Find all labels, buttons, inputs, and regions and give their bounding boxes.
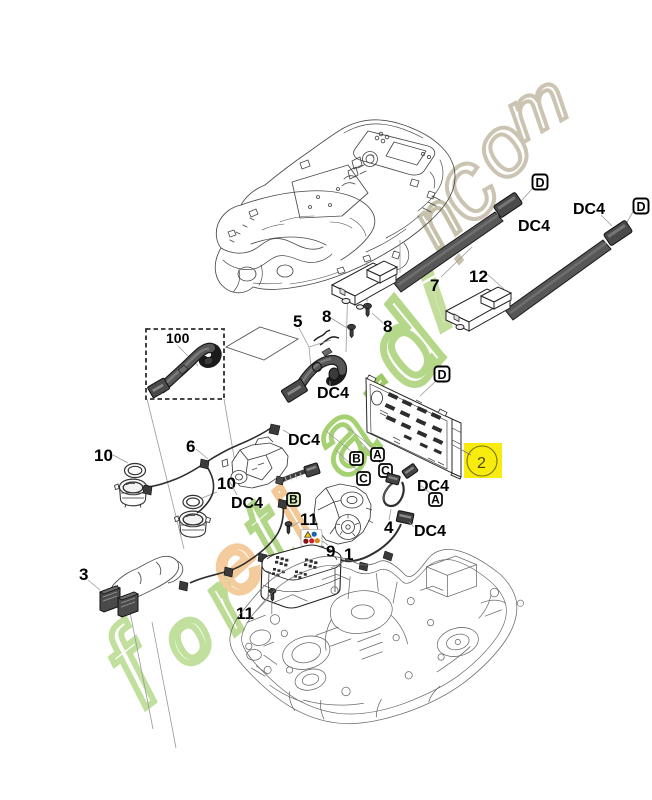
svg-text:D: D xyxy=(437,368,446,382)
svg-text:11: 11 xyxy=(236,604,254,623)
svg-text:B: B xyxy=(289,493,298,507)
svg-text:D: D xyxy=(636,200,645,214)
svg-text:DC4: DC4 xyxy=(288,432,320,449)
svg-text:3: 3 xyxy=(79,565,88,584)
svg-text:10: 10 xyxy=(217,474,236,493)
svg-text:4: 4 xyxy=(384,518,394,537)
svg-text:DC4: DC4 xyxy=(231,495,263,512)
svg-text:100: 100 xyxy=(166,330,190,346)
svg-text:8: 8 xyxy=(383,317,392,336)
svg-text:A: A xyxy=(431,493,440,507)
svg-text:DC4: DC4 xyxy=(317,385,349,402)
svg-text:2: 2 xyxy=(477,455,486,472)
svg-text:12: 12 xyxy=(469,267,488,286)
svg-text:6: 6 xyxy=(186,437,195,456)
svg-text:D: D xyxy=(535,176,544,190)
svg-text:B: B xyxy=(352,452,361,466)
svg-text:5: 5 xyxy=(293,312,302,331)
svg-text:DC4: DC4 xyxy=(573,201,605,218)
svg-text:11: 11 xyxy=(300,510,318,529)
svg-text:7: 7 xyxy=(430,276,439,295)
svg-text:A: A xyxy=(373,448,382,462)
svg-text:DC4: DC4 xyxy=(518,218,550,235)
svg-text:8: 8 xyxy=(322,307,331,326)
svg-text:DC4: DC4 xyxy=(414,523,446,540)
svg-text:C: C xyxy=(359,472,368,486)
svg-text:10: 10 xyxy=(94,446,113,465)
